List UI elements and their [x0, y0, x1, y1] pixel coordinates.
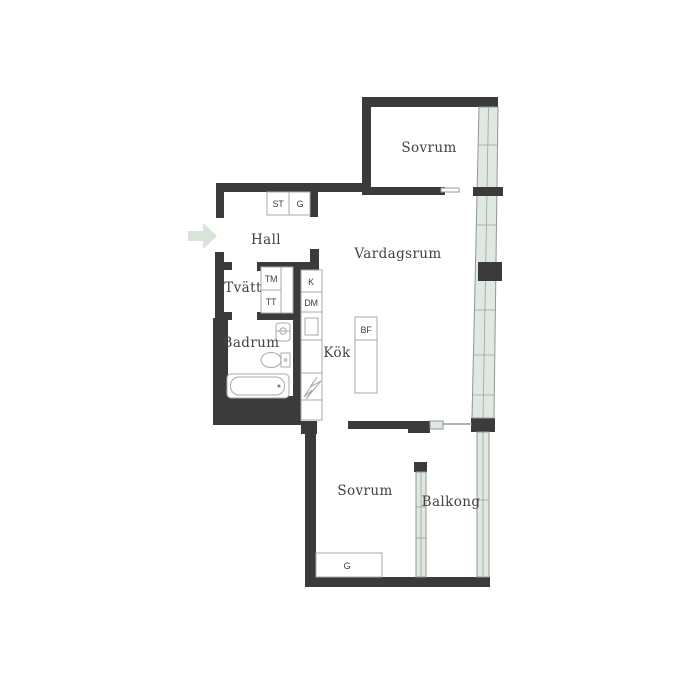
- doors: [441, 188, 472, 424]
- wall-segment: [293, 262, 301, 425]
- entrance-arrow-icon: [188, 223, 217, 249]
- room-label-sovrum-top: Sovrum: [401, 140, 456, 156]
- room-label-balkong: Balkong: [422, 494, 481, 510]
- kitchen-counter: K DM: [301, 270, 322, 420]
- wall-segment: [213, 396, 301, 425]
- wall-segment: [471, 418, 495, 432]
- kitchen-k-label: K: [308, 277, 314, 287]
- wall-segment: [216, 183, 224, 218]
- hall-closets: ST G: [267, 192, 310, 215]
- wall-segment: [305, 421, 316, 577]
- room-labels: Sovrum Vardagsrum Hall Tvätt Badrum Kök …: [223, 140, 481, 510]
- wall-segment: [473, 187, 503, 196]
- room-label-vardagsrum: Vardagsrum: [353, 246, 441, 262]
- bedroom-closet-label: G: [344, 561, 351, 571]
- kitchen-island: BF: [355, 317, 377, 393]
- closet-st-label: ST: [272, 199, 284, 209]
- wall-segment: [362, 97, 371, 195]
- wall-segment: [216, 183, 371, 192]
- wall-segment: [478, 262, 502, 281]
- laundry-machines: TM TT: [261, 267, 293, 313]
- wall-segment: [414, 462, 427, 472]
- room-label-kok: Kök: [323, 345, 351, 361]
- toilet-bowl: [261, 353, 281, 368]
- wall-segment: [362, 97, 498, 107]
- kitchen-sink: [305, 318, 318, 335]
- island-bf-label: BF: [360, 325, 372, 335]
- wall-segment: [371, 187, 445, 195]
- sliding-door-bedroom: [441, 188, 459, 192]
- toilet-tank: [281, 353, 290, 367]
- room-label-hall: Hall: [251, 232, 281, 248]
- room-label-sovrum-bottom: Sovrum: [337, 483, 392, 499]
- wall-segment: [310, 183, 318, 217]
- wall-segment: [215, 252, 224, 318]
- room-label-badrum: Badrum: [223, 335, 280, 351]
- tumble-dryer-label: TT: [266, 297, 277, 307]
- wall-segment: [224, 312, 232, 320]
- closet-g-label: G: [297, 199, 304, 209]
- bedroom-closet: G: [316, 553, 382, 577]
- washing-machine-label: TM: [265, 274, 278, 284]
- floor-plan-drawing: ST G TM TT K DM BF: [0, 0, 683, 683]
- wall-segment: [213, 318, 228, 398]
- window-balcony-top: [430, 421, 443, 429]
- wall-segment: [224, 262, 232, 270]
- wall-segment: [305, 577, 490, 587]
- floor-plan-canvas: ST G TM TT K DM BF: [0, 0, 683, 683]
- room-label-tvatt: Tvätt: [224, 280, 262, 296]
- bathtub-drain: [278, 385, 281, 388]
- wall-segment: [408, 421, 430, 433]
- dishwasher-label: DM: [304, 298, 318, 308]
